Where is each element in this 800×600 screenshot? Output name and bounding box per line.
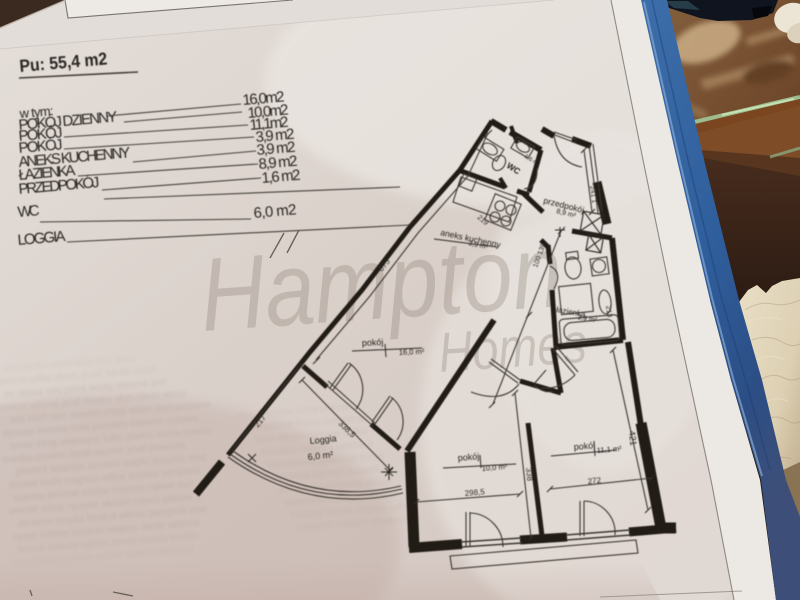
svg-text:1,6 m2: 1,6 m2 <box>261 167 301 187</box>
svg-text:WC: WC <box>17 202 41 221</box>
svg-text:338: 338 <box>524 467 534 482</box>
svg-text:pokój: pokój <box>573 440 595 452</box>
svg-text:298,5: 298,5 <box>464 487 485 498</box>
svg-text:pokój: pokój <box>362 337 384 348</box>
svg-text:421: 421 <box>627 430 639 446</box>
svg-text:16,0 m²: 16,0 m² <box>399 347 425 357</box>
svg-text:272: 272 <box>587 476 602 486</box>
svg-text:pokój: pokój <box>457 451 479 463</box>
